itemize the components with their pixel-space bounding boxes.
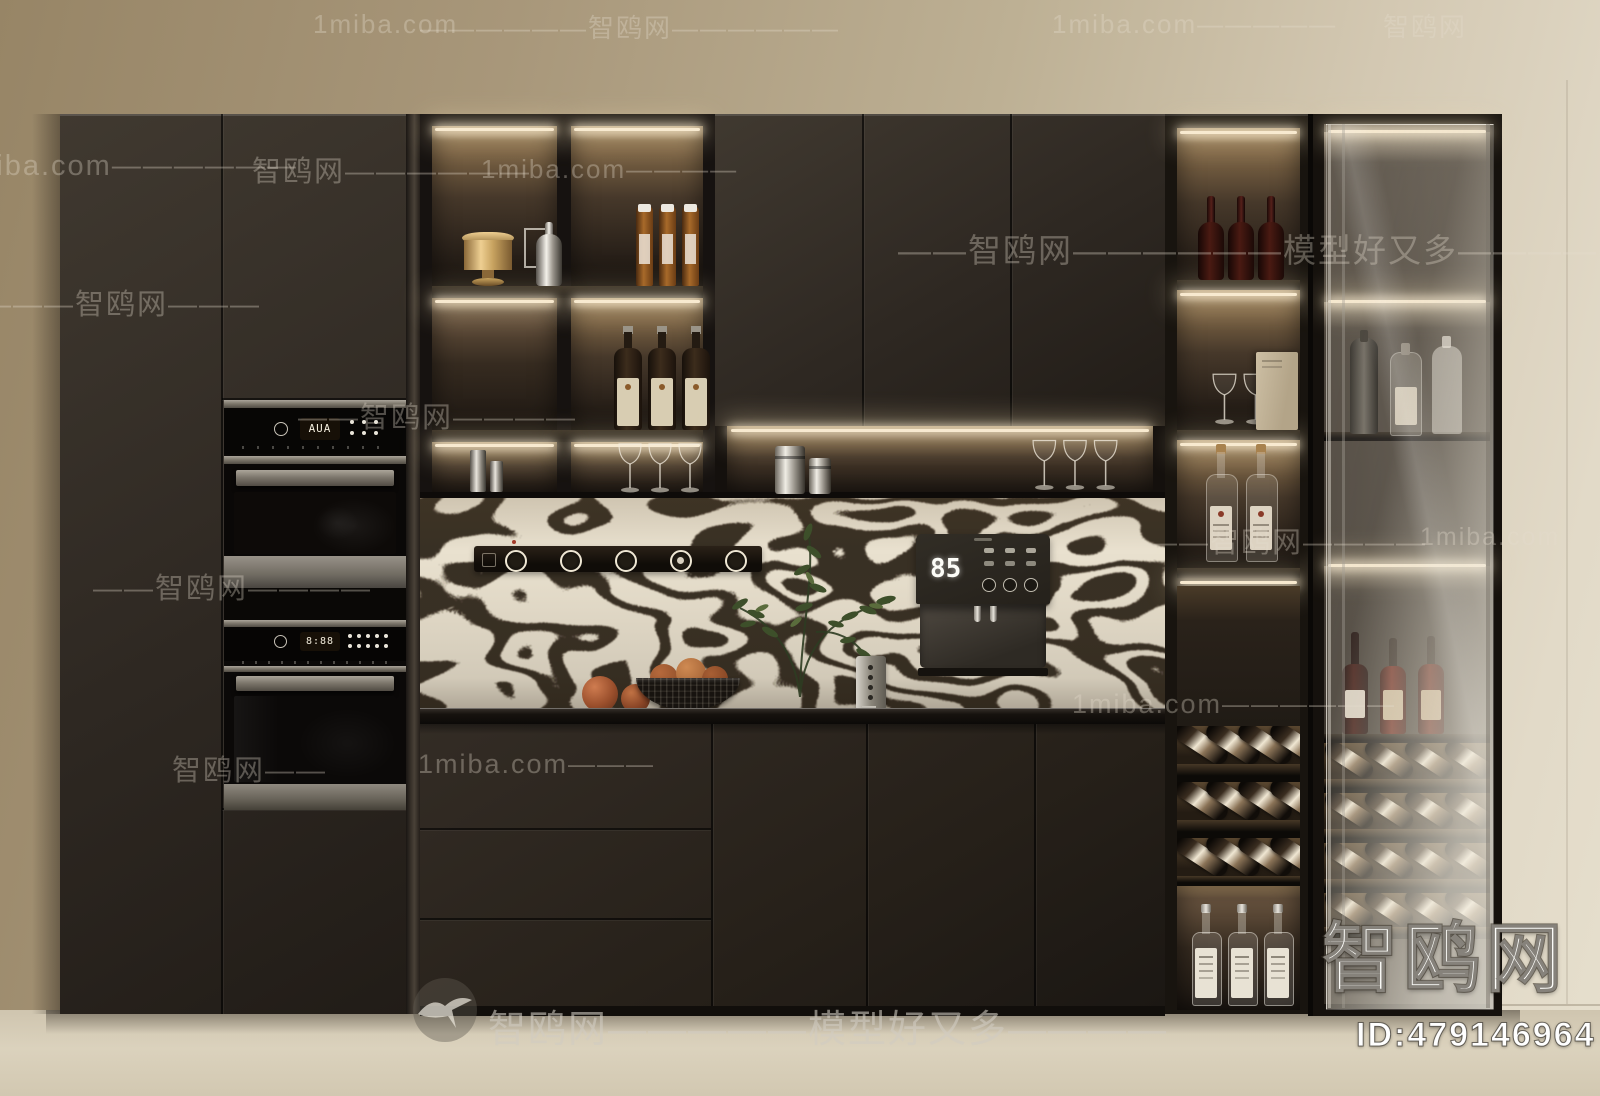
niche-band-frame — [715, 426, 727, 496]
gin-bottle — [1228, 904, 1256, 1004]
metal-cup — [490, 461, 503, 492]
oven-display: 8:88 — [300, 632, 340, 651]
wine-glasses — [1030, 438, 1122, 492]
site-logo: 智鸥网 — [1322, 922, 1568, 998]
dispenser-indicators — [984, 548, 1042, 554]
display-niche — [1177, 440, 1300, 568]
water-dispenser: 85 — [916, 534, 1050, 676]
oven-base-strip — [224, 556, 406, 588]
dark-wine-bottle — [1198, 196, 1224, 280]
gin-bottle — [1192, 904, 1220, 1004]
niche-led-strip — [731, 429, 1149, 432]
base-cabinets — [420, 724, 1165, 1006]
display-niche — [432, 298, 557, 430]
clear-spirit-bottle — [1206, 444, 1236, 560]
cabinet-top-highlight — [60, 114, 420, 116]
labeled-bottles — [614, 326, 710, 430]
metal-canister — [809, 458, 831, 494]
oven-tick-row — [242, 661, 388, 664]
power-icon — [274, 422, 288, 436]
upper-center-cabinets — [715, 114, 1165, 426]
cabinet-gap — [1308, 114, 1313, 1016]
closed-section — [1177, 586, 1300, 726]
rack-rail — [1177, 820, 1300, 838]
drawer-seam — [420, 918, 711, 920]
oven-base-strip — [224, 784, 406, 810]
rail-knob — [670, 550, 692, 572]
wine-rack-row — [1177, 838, 1300, 876]
chrome-decanter — [536, 222, 562, 286]
kick-plate — [420, 1006, 1165, 1016]
glass-door-stile — [1328, 124, 1331, 1008]
oven-display-text: 8:88 — [306, 636, 334, 647]
oven-tick-row — [242, 446, 388, 449]
niche-led-strip — [574, 300, 700, 303]
cabinet-left-shadow — [32, 114, 60, 1014]
built-in-oven-top: AUA — [224, 400, 406, 588]
dispenser-display: 85 — [930, 554, 961, 584]
dispenser-spout — [974, 606, 981, 622]
clear-spirit-bottle — [1246, 444, 1276, 560]
oven-button — [350, 420, 354, 424]
door-seam — [866, 724, 868, 1006]
niche-band-frame — [1153, 426, 1165, 496]
shelf — [1177, 568, 1300, 578]
oven-door-glass — [234, 492, 396, 554]
wine-glasses — [616, 442, 706, 494]
dispenser-body — [920, 604, 1046, 668]
dispenser-head: 85 — [916, 534, 1050, 604]
rail-knob — [560, 550, 582, 572]
door-seam — [221, 114, 223, 1014]
indicator-light — [512, 540, 516, 544]
rail-knob — [615, 550, 637, 572]
oven-trim — [224, 456, 406, 464]
oven-display-text: AUA — [309, 422, 332, 435]
rack-rail — [1177, 764, 1300, 782]
door-seam — [711, 724, 713, 1006]
built-in-oven-bottom: 8:88 — [224, 588, 406, 810]
dark-wine-bottle — [1258, 196, 1284, 280]
rack-rail — [1177, 876, 1300, 886]
oven-control-panel: AUA — [224, 408, 406, 454]
upper-display-cabinet — [420, 114, 715, 498]
metal-canister — [775, 446, 805, 494]
niche-led-strip — [435, 128, 554, 131]
wine-rack-row — [1177, 782, 1300, 820]
dispenser-button — [1024, 578, 1038, 592]
dispenser-spout — [990, 606, 997, 622]
door-seam — [1034, 724, 1036, 1006]
glass-door-stile — [1342, 124, 1345, 1008]
power-icon — [274, 635, 287, 648]
oven-control-panel: 8:88 — [224, 627, 406, 661]
oven-button — [348, 634, 352, 638]
glass-door-frame — [1486, 124, 1490, 1008]
faucet — [856, 656, 886, 710]
fruit — [582, 676, 618, 712]
oven-display: AUA — [300, 418, 340, 440]
niche-led-strip — [1180, 131, 1297, 134]
amber-bottles — [636, 206, 702, 286]
shelf — [1177, 430, 1300, 440]
oven-door-glass — [234, 696, 396, 782]
drawer-seam — [420, 828, 711, 830]
oven-handle — [236, 470, 394, 486]
dispenser-button — [1003, 578, 1017, 592]
kitchen-cabinet-render: AUA 8:88 — [0, 0, 1600, 1096]
gift-box — [1256, 352, 1298, 430]
dispenser-button — [982, 578, 996, 592]
shelf — [432, 430, 703, 442]
wine-rack-row — [1177, 726, 1300, 764]
door-seam — [1010, 114, 1012, 426]
metal-cup — [470, 450, 486, 492]
brass-canister — [462, 232, 514, 286]
cabinet-side-edge — [406, 114, 420, 1014]
shelf — [432, 286, 703, 298]
dispenser-indicators — [984, 561, 1042, 567]
rail-knob — [505, 550, 527, 572]
countertop — [420, 708, 1165, 724]
wall-corner-line — [1566, 80, 1568, 1004]
oven-trim — [224, 666, 406, 672]
niche-led-strip — [1180, 293, 1297, 296]
shelf — [1177, 280, 1300, 290]
oven-gap — [224, 588, 406, 620]
niche-led-strip — [435, 300, 554, 303]
oven-handle — [236, 676, 394, 691]
wall-edge-line — [1502, 1004, 1600, 1006]
image-id: ID:479146964 — [1356, 1018, 1596, 1052]
gin-bottle — [1264, 904, 1292, 1004]
glass-display-cabinet — [1312, 114, 1502, 1016]
door-seam — [862, 114, 864, 426]
niche-led-strip — [435, 444, 554, 447]
niche-led-strip — [574, 128, 700, 131]
glass-door — [1326, 124, 1494, 1010]
dispenser-base — [918, 668, 1048, 676]
oven-trim — [224, 620, 406, 627]
watermark-bird-icon — [408, 976, 482, 1044]
niche-led-strip — [1180, 581, 1297, 584]
rail-icon — [482, 553, 496, 567]
oven-trim — [224, 400, 406, 408]
niche-led-strip — [1180, 443, 1297, 446]
dark-wine-bottle — [1228, 196, 1254, 280]
